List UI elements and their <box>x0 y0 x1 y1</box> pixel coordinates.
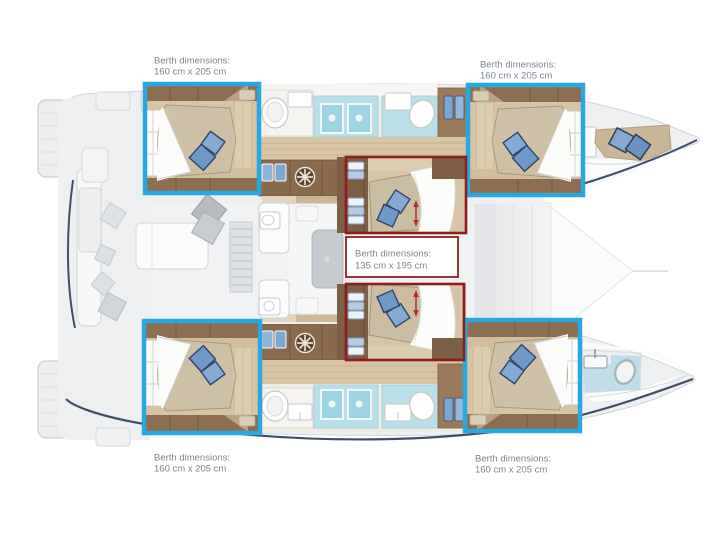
svg-text:160 cm x 205 cm: 160 cm x 205 cm <box>154 67 226 78</box>
svg-text:Berth dimensions:: Berth dimensions: <box>154 56 230 67</box>
svg-text:Berth dimensions:: Berth dimensions: <box>154 453 230 464</box>
svg-text:Berth dimensions:: Berth dimensions: <box>475 454 551 465</box>
svg-text:135 cm x 195 cm: 135 cm x 195 cm <box>355 261 427 272</box>
svg-text:160 cm x 205 cm: 160 cm x 205 cm <box>475 465 547 476</box>
svg-text:160 cm x 205 cm: 160 cm x 205 cm <box>154 464 226 475</box>
svg-text:Berth dimensions:: Berth dimensions: <box>480 60 556 71</box>
svg-text:Berth dimensions:: Berth dimensions: <box>355 249 431 260</box>
svg-text:160 cm x 205 cm: 160 cm x 205 cm <box>480 71 552 82</box>
